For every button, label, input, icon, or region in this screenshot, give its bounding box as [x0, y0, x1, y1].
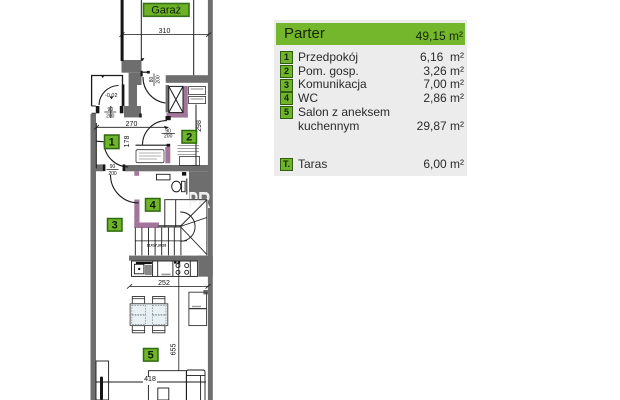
svg-text:1: 1: [109, 137, 115, 149]
svg-text:252: 252: [158, 280, 170, 287]
svg-text:90: 90: [110, 164, 116, 170]
svg-text:Garaż: Garaż: [151, 5, 181, 17]
svg-text:80: 80: [149, 77, 155, 83]
svg-text:178: 178: [124, 136, 131, 148]
svg-text:655: 655: [170, 344, 177, 356]
svg-text:4: 4: [150, 200, 157, 212]
svg-text:5: 5: [148, 350, 154, 362]
svg-text:418: 418: [144, 376, 156, 383]
svg-text:3: 3: [112, 220, 118, 232]
svg-text:90: 90: [108, 107, 114, 113]
svg-text:200: 200: [106, 113, 115, 119]
svg-text:2: 2: [186, 132, 192, 144]
svg-text:200: 200: [108, 171, 117, 177]
svg-text:11X17,3X28: 11X17,3X28: [147, 244, 167, 248]
svg-text:200: 200: [164, 133, 173, 139]
svg-text:310: 310: [159, 28, 171, 35]
svg-text:200: 200: [155, 75, 161, 84]
svg-text:270: 270: [126, 121, 138, 128]
